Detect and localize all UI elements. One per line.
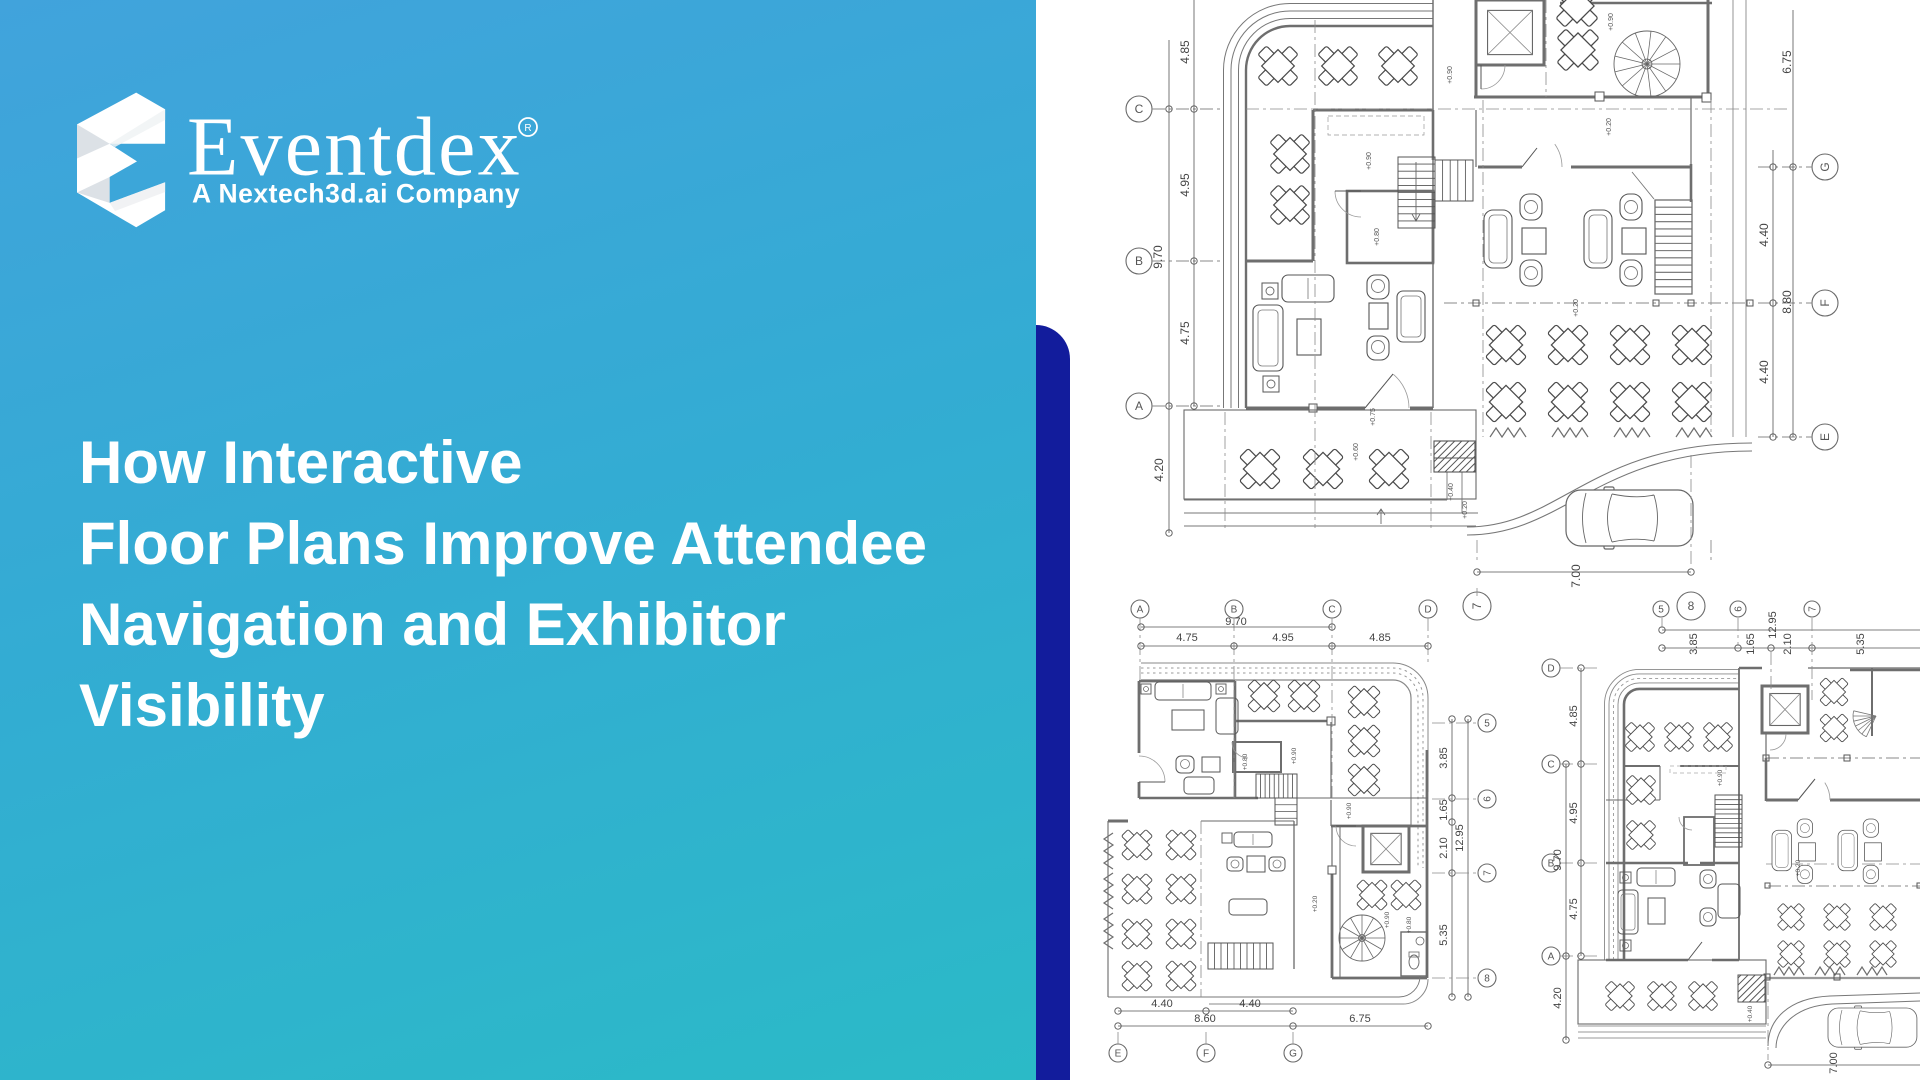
svg-text:E: E bbox=[1115, 1049, 1122, 1060]
svg-text:+0.90: +0.90 bbox=[1717, 769, 1724, 786]
svg-text:8.80: 8.80 bbox=[1780, 290, 1794, 314]
svg-text:G: G bbox=[1818, 162, 1832, 171]
svg-text:A Nextech3d.ai Company: A Nextech3d.ai Company bbox=[192, 179, 520, 209]
svg-text:+0.20: +0.20 bbox=[1795, 859, 1802, 876]
svg-text:8: 8 bbox=[1688, 599, 1695, 613]
svg-text:7: 7 bbox=[1483, 870, 1494, 876]
svg-text:12.95: 12.95 bbox=[1767, 611, 1779, 639]
svg-text:6: 6 bbox=[1483, 796, 1494, 802]
svg-text:4.75: 4.75 bbox=[1176, 632, 1197, 644]
svg-text:2.10: 2.10 bbox=[1782, 633, 1794, 654]
svg-text:7: 7 bbox=[1470, 602, 1484, 609]
svg-text:1.65: 1.65 bbox=[1745, 633, 1757, 654]
svg-text:B: B bbox=[1231, 605, 1238, 616]
svg-text:+0.40: +0.40 bbox=[1448, 483, 1455, 501]
svg-text:7: 7 bbox=[1808, 606, 1819, 612]
svg-text:+0.80: +0.80 bbox=[1374, 228, 1381, 246]
svg-text:A: A bbox=[1137, 605, 1144, 616]
svg-text:9.70: 9.70 bbox=[1552, 849, 1564, 870]
svg-text:D: D bbox=[1547, 664, 1554, 675]
svg-text:3.85: 3.85 bbox=[1438, 747, 1450, 768]
svg-text:5.35: 5.35 bbox=[1855, 633, 1867, 654]
svg-text:+0.80: +0.80 bbox=[1242, 753, 1249, 770]
svg-text:B: B bbox=[1135, 254, 1143, 268]
svg-text:+0.60: +0.60 bbox=[1353, 443, 1360, 461]
svg-text:+0.90: +0.90 bbox=[1447, 66, 1454, 84]
svg-text:F: F bbox=[1203, 1049, 1209, 1060]
svg-text:+0.20: +0.20 bbox=[1462, 501, 1469, 519]
svg-text:1.65: 1.65 bbox=[1438, 799, 1450, 820]
svg-text:C: C bbox=[1135, 102, 1144, 116]
svg-text:A: A bbox=[1548, 952, 1555, 963]
svg-text:7.00: 7.00 bbox=[1828, 1052, 1840, 1073]
svg-text:2.10: 2.10 bbox=[1438, 837, 1450, 858]
svg-text:+0.90: +0.90 bbox=[1384, 911, 1391, 928]
svg-text:9.70: 9.70 bbox=[1151, 245, 1165, 269]
svg-text:4.75: 4.75 bbox=[1568, 898, 1580, 919]
svg-text:5: 5 bbox=[1484, 719, 1490, 730]
svg-text:12.95: 12.95 bbox=[1454, 824, 1466, 852]
svg-text:C: C bbox=[1547, 760, 1554, 771]
svg-text:3.85: 3.85 bbox=[1688, 633, 1700, 654]
svg-text:4.20: 4.20 bbox=[1152, 458, 1166, 482]
svg-text:5.35: 5.35 bbox=[1438, 924, 1450, 945]
svg-text:4.75: 4.75 bbox=[1178, 321, 1192, 345]
svg-text:C: C bbox=[1328, 605, 1335, 616]
svg-text:G: G bbox=[1289, 1049, 1297, 1060]
svg-text:E: E bbox=[1818, 433, 1832, 441]
svg-text:+0.40: +0.40 bbox=[1747, 1005, 1754, 1022]
svg-text:+0.90: +0.90 bbox=[1346, 802, 1353, 819]
svg-text:8.60: 8.60 bbox=[1194, 1013, 1215, 1025]
svg-text:4.95: 4.95 bbox=[1272, 632, 1293, 644]
svg-text:4.40: 4.40 bbox=[1757, 223, 1771, 247]
svg-text:+0.20: +0.20 bbox=[1312, 895, 1319, 912]
svg-text:+0.75: +0.75 bbox=[1370, 408, 1377, 426]
svg-text:F: F bbox=[1818, 299, 1832, 306]
svg-text:4.85: 4.85 bbox=[1178, 40, 1192, 64]
svg-text:5: 5 bbox=[1658, 605, 1664, 616]
svg-text:4.40: 4.40 bbox=[1239, 998, 1260, 1010]
svg-text:8: 8 bbox=[1484, 974, 1490, 985]
svg-text:6.75: 6.75 bbox=[1780, 50, 1794, 74]
svg-text:4.40: 4.40 bbox=[1757, 360, 1771, 384]
svg-text:4.95: 4.95 bbox=[1568, 802, 1580, 823]
svg-text:+0.80: +0.80 bbox=[1406, 916, 1413, 933]
svg-text:R: R bbox=[524, 123, 531, 134]
svg-text:4.95: 4.95 bbox=[1178, 173, 1192, 197]
svg-text:+0.90: +0.90 bbox=[1291, 747, 1298, 764]
svg-text:4.85: 4.85 bbox=[1568, 705, 1580, 726]
svg-text:4.20: 4.20 bbox=[1552, 987, 1564, 1008]
svg-text:7.00: 7.00 bbox=[1569, 564, 1583, 588]
svg-text:+0.90: +0.90 bbox=[1366, 152, 1373, 170]
svg-text:+0.20: +0.20 bbox=[1606, 118, 1613, 136]
svg-text:6: 6 bbox=[1734, 606, 1745, 612]
svg-text:4.85: 4.85 bbox=[1369, 632, 1390, 644]
svg-text:+0.20: +0.20 bbox=[1573, 299, 1580, 317]
svg-text:+0.90: +0.90 bbox=[1608, 13, 1615, 31]
svg-text:9.70: 9.70 bbox=[1225, 616, 1246, 628]
svg-text:A: A bbox=[1135, 399, 1143, 413]
svg-text:4.40: 4.40 bbox=[1151, 998, 1172, 1010]
svg-text:6.75: 6.75 bbox=[1349, 1013, 1370, 1025]
svg-text:D: D bbox=[1424, 605, 1431, 616]
